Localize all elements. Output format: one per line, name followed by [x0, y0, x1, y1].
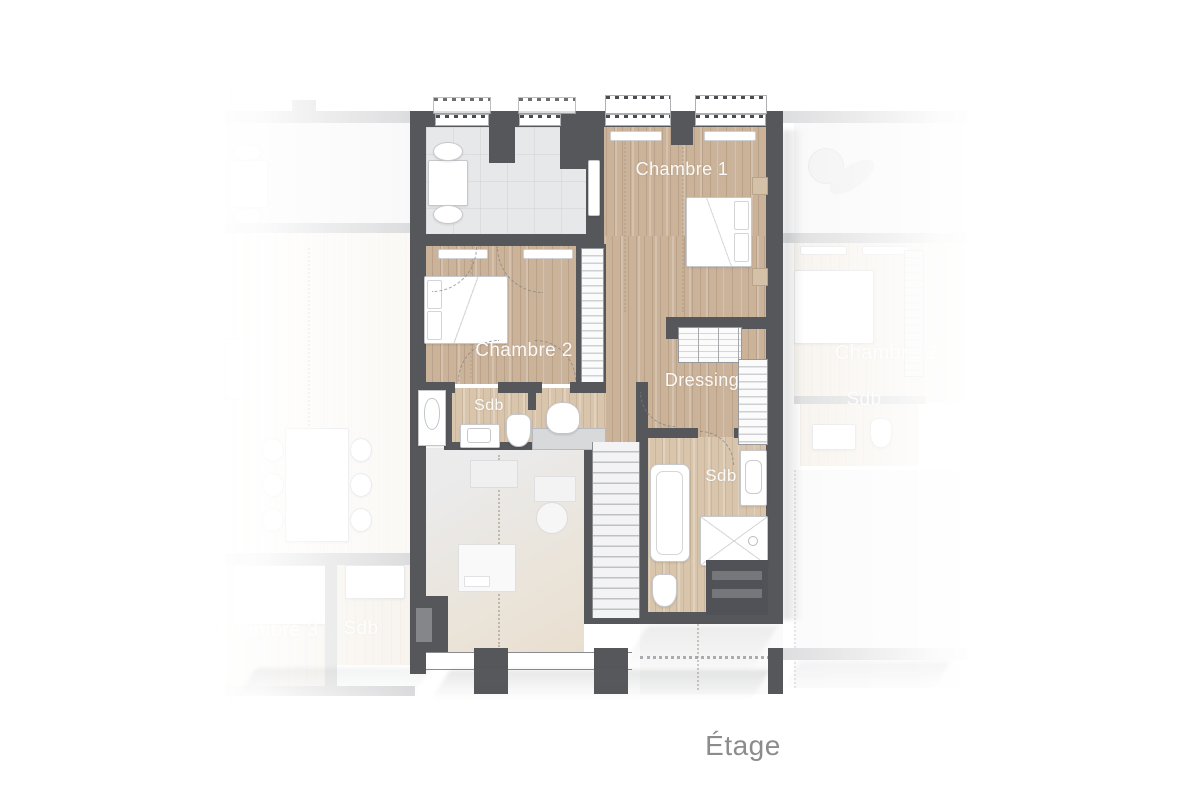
window-sill	[704, 131, 756, 141]
wall-right	[766, 111, 783, 623]
cabinet-detail	[464, 576, 490, 587]
window-box-exterior	[695, 95, 767, 114]
wardrobe-dressing-top	[678, 327, 742, 363]
chair	[536, 502, 568, 534]
washbasin-round	[546, 402, 580, 434]
shadow-band	[783, 662, 950, 690]
table	[428, 160, 468, 206]
room-label-sdb-small: Sdb	[459, 397, 519, 415]
wall-segment	[528, 382, 536, 410]
chair	[433, 142, 463, 161]
room-label-dressing: Dressing	[632, 370, 772, 391]
shower-drain	[748, 536, 758, 546]
window	[435, 114, 489, 126]
toilet	[424, 398, 440, 430]
window-box-exterior	[518, 97, 576, 114]
window-sill	[610, 131, 662, 141]
shadow-band	[431, 670, 770, 700]
neighbour-unit-right: Chambre 2 Sdb	[782, 88, 982, 704]
desk	[534, 476, 576, 502]
technical-unit-slat	[712, 571, 762, 580]
shelf	[470, 460, 518, 488]
shadow-party-wall	[783, 130, 803, 620]
wall-dressing-return	[666, 317, 678, 339]
floor-plan-page: Chambre 3 Sdb Chambre 2 Sdb	[0, 0, 1200, 794]
pillow	[427, 311, 442, 340]
shadow-band	[240, 668, 431, 694]
pillow	[734, 233, 749, 262]
room-label-chambre-1: Chambre 1	[612, 159, 752, 180]
room-label-sdb-large: Sdb	[691, 466, 751, 486]
chair	[433, 205, 463, 224]
wall-pier	[768, 648, 783, 694]
washbasin-bowl	[467, 428, 491, 443]
window	[695, 114, 766, 126]
window-box-exterior	[433, 97, 491, 114]
window	[519, 114, 561, 126]
nightstand	[752, 177, 768, 195]
technical-unit	[706, 560, 768, 615]
wardrobe-chambre-2	[581, 248, 604, 388]
window-box-exterior	[605, 95, 671, 114]
technical-unit-slat	[712, 589, 762, 598]
room-label-chambre-2: Chambre 2	[454, 340, 594, 362]
chimney-inner	[416, 608, 432, 642]
bathtub-inner	[656, 471, 683, 555]
wall-pier	[489, 111, 515, 163]
fade-overlay	[782, 88, 982, 704]
nightstand	[752, 268, 768, 286]
wall-segment	[570, 382, 606, 393]
radiator	[588, 160, 600, 216]
toilet	[652, 574, 677, 607]
pillow	[734, 201, 749, 230]
fade-overlay	[200, 88, 416, 704]
toilet	[506, 414, 531, 447]
window	[605, 114, 671, 126]
staircase	[592, 442, 640, 618]
neighbour-unit-left: Chambre 3 Sdb	[200, 88, 416, 704]
wall-pier	[671, 111, 693, 145]
wall-grayroom-bottom	[410, 234, 604, 246]
floor-caption: Étage	[663, 730, 823, 762]
